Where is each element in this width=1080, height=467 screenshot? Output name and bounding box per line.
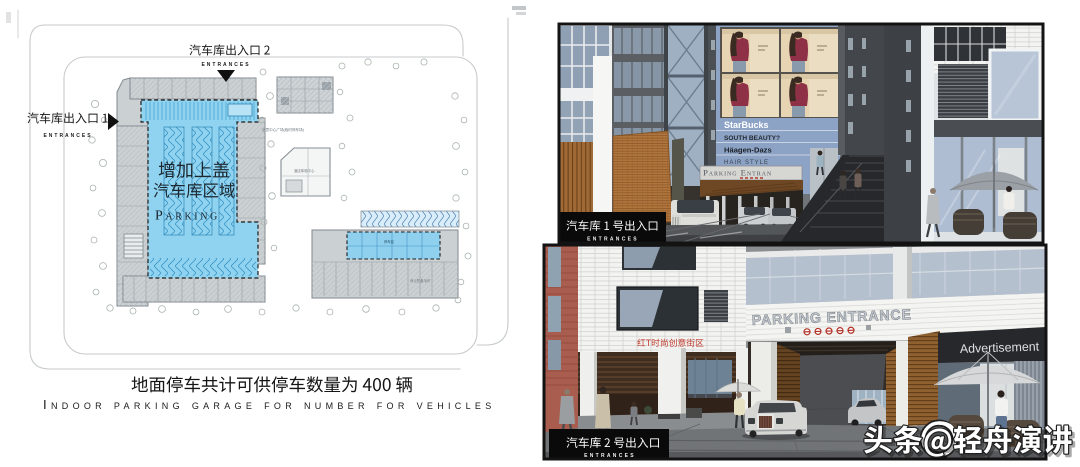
- svg-text:entrances: entrances: [43, 130, 92, 139]
- svg-text:Häagen-Dazs: Häagen-Dazs: [724, 146, 772, 155]
- svg-text:entrances: entrances: [201, 59, 250, 68]
- svg-text:酒店体验中心: 酒店体验中心: [294, 168, 315, 173]
- svg-text:entrances: entrances: [587, 234, 639, 243]
- svg-text:Indoor parking garage for numb: Indoor parking garage for number for veh…: [43, 397, 496, 412]
- svg-text:Parking Entran: Parking Entran: [703, 168, 772, 178]
- svg-text:Parking: Parking: [155, 209, 220, 224]
- svg-text:HAIR STYLE: HAIR STYLE: [724, 160, 769, 166]
- svg-text:停车区: 停车区: [384, 239, 395, 244]
- svg-text:StarBucks: StarBucks: [724, 120, 769, 130]
- svg-text:创意中心广场(临时停车场): 创意中心广场(临时停车场): [262, 127, 304, 132]
- svg-text:SOUTH BEAUTY?: SOUTH BEAUTY?: [724, 135, 780, 142]
- svg-text:Advertisement: Advertisement: [960, 340, 1040, 356]
